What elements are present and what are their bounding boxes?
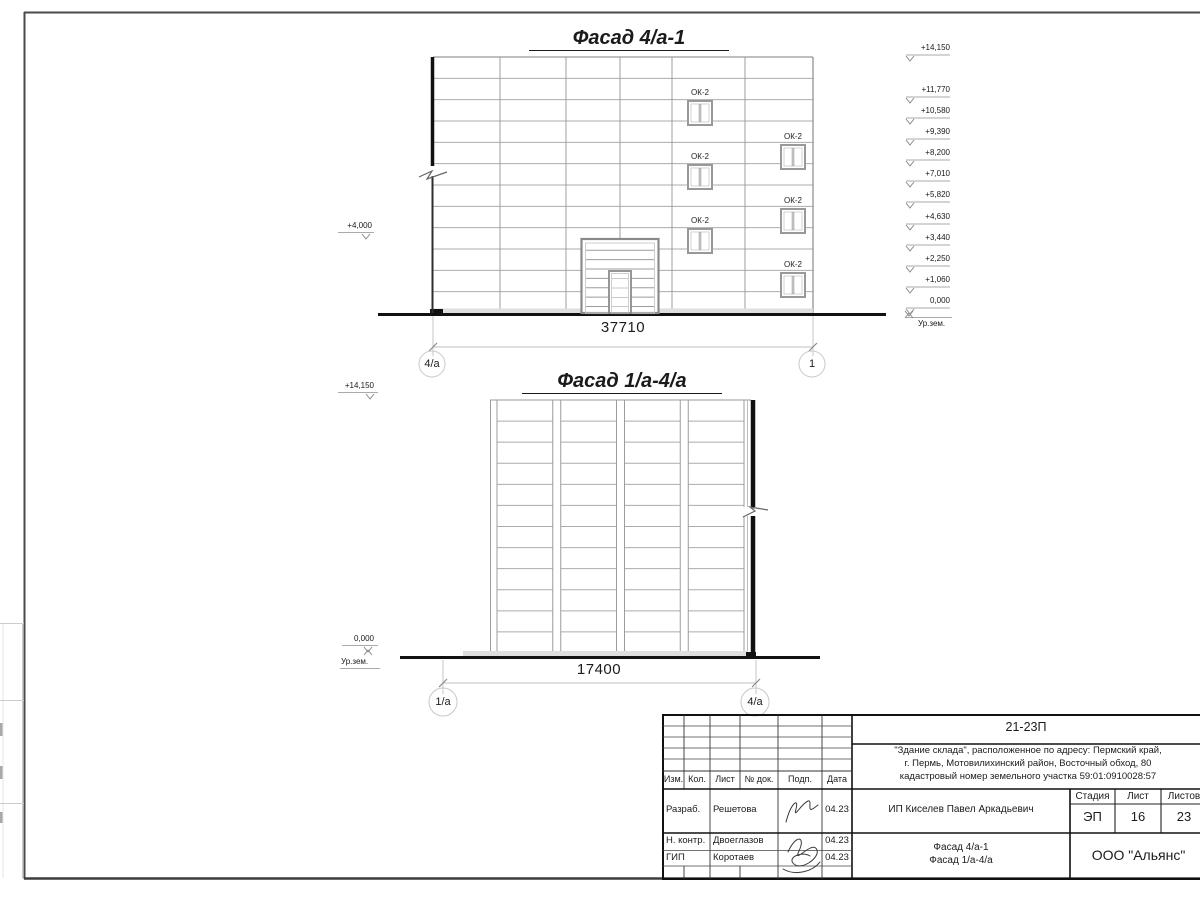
drawing-sheet: Фасад 4/а-1 ОК-2 ОК-2 ОК-2 ОК-2 ОК-2 ОК-… — [0, 0, 1200, 900]
staff-date: 04.23 — [822, 805, 852, 815]
axis-bubble-label: 4/а — [418, 358, 446, 370]
window-label: ОК-2 — [680, 217, 720, 226]
facade1-title: Фасад 4/а-1 — [529, 27, 729, 51]
project-address-line1: "Здание склада", расположенное по адресу… — [856, 746, 1200, 756]
project-address-line2: г. Пермь, Мотовилихинский район, Восточн… — [856, 759, 1200, 769]
col-header-kol: Кол. — [684, 775, 710, 785]
left-margin-table — [0, 623, 24, 878]
elevation-mark: +2,250 — [906, 255, 950, 264]
staff-role: ГИП — [666, 853, 685, 863]
dimension-value: 17400 — [549, 662, 649, 679]
window-label: ОК-2 — [773, 261, 813, 270]
window-label: ОК-2 — [773, 133, 813, 142]
facade2-elevation-marks — [338, 393, 380, 669]
dimension-value: 37710 — [573, 320, 673, 337]
col-header-doc: № док. — [740, 775, 778, 785]
elevation-mark: +4,630 — [906, 213, 950, 222]
staff-role: Н. контр. — [666, 836, 705, 846]
sheet-number: 16 — [1115, 810, 1161, 824]
drawing-title-line1: Фасад 4/а-1 — [852, 842, 1070, 853]
elevation-mark: +3,440 — [906, 234, 950, 243]
col-header-sheets: Листов — [1161, 791, 1200, 802]
elevation-mark: +10,580 — [906, 107, 950, 116]
axis-bubble-label: 1/а — [429, 696, 457, 708]
ground-level-label: Ур.зем. — [918, 320, 945, 329]
staff-role: Разраб. — [666, 805, 700, 815]
col-header-izm: Изм. — [663, 775, 684, 785]
axis-bubble-label: 1 — [798, 358, 826, 370]
elevation-mark: +1,060 — [906, 276, 950, 285]
elevation-mark: 0,000 — [906, 297, 950, 306]
elevation-mark: +9,390 — [906, 128, 950, 137]
elevation-mark: +14,150 — [906, 44, 950, 53]
elevation-mark: +7,010 — [906, 170, 950, 179]
project-code: 21-23П — [852, 721, 1200, 735]
drawing-title-line2: Фасад 1/а-4/а — [852, 855, 1070, 866]
elevation-mark: 0,000 — [330, 635, 374, 644]
stage-value: ЭП — [1070, 810, 1115, 824]
col-header-data: Дата — [822, 775, 852, 785]
col-header-stage: Стадия — [1070, 791, 1115, 802]
staff-name: Коротаев — [713, 853, 754, 863]
company-name: ООО "Альянс" — [1070, 848, 1200, 863]
elevation-mark: +11,770 — [906, 86, 950, 95]
project-address-line3: кадастровый номер земельного участка 59:… — [856, 772, 1200, 782]
col-header-podp: Подп. — [778, 775, 822, 785]
window-label: ОК-2 — [773, 197, 813, 206]
elevation-mark: +8,200 — [906, 149, 950, 158]
client-name: ИП Киселев Павел Аркадьевич — [852, 804, 1070, 815]
sheets-total: 23 — [1161, 810, 1200, 824]
facade1-door — [582, 239, 659, 313]
staff-date: 04.23 — [822, 836, 852, 846]
staff-name: Решетова — [713, 805, 757, 815]
elevation-mark: +5,820 — [906, 191, 950, 200]
staff-name: Двоеглазов — [713, 836, 764, 846]
window-label: ОК-2 — [680, 89, 720, 98]
col-header-sheet: Лист — [1115, 791, 1161, 802]
elevation-mark: +14,150 — [328, 382, 374, 391]
elevation-mark-left: +4,000 — [326, 222, 372, 231]
staff-date: 04.23 — [822, 853, 852, 863]
col-header-list: Лист — [710, 775, 740, 785]
facade2-title: Фасад 1/а-4/а — [522, 370, 722, 394]
signatures — [783, 801, 820, 873]
ground-level-label: Ур.зем. — [341, 658, 368, 667]
window-label: ОК-2 — [680, 153, 720, 162]
facade2-building — [400, 400, 820, 658]
axis-bubble-label: 4/а — [741, 696, 769, 708]
